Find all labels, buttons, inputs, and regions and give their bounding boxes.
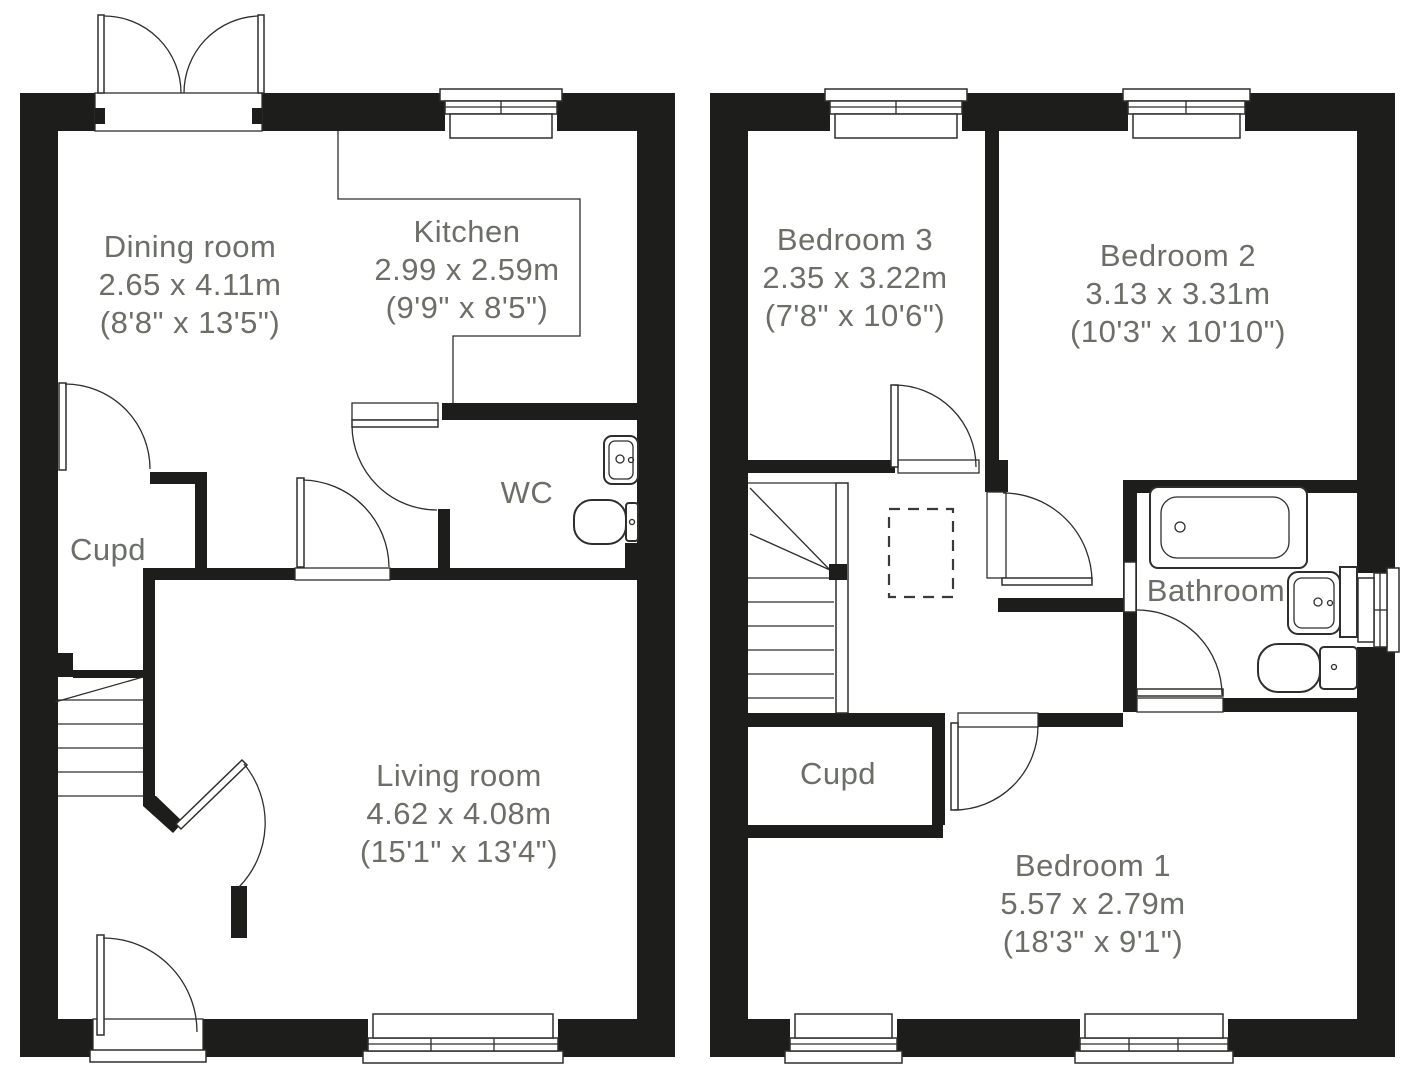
- door-arc: [1003, 493, 1092, 582]
- bedroom3-door: [891, 385, 979, 473]
- living-room-door: [176, 760, 265, 887]
- bathroom-sink: [1288, 567, 1357, 637]
- door-leaf: [59, 383, 66, 470]
- ground-stairs: [55, 670, 143, 796]
- door-arc: [184, 16, 258, 93]
- door-leaf: [352, 420, 438, 427]
- door-leaf: [891, 385, 898, 467]
- door-arc: [239, 764, 265, 887]
- door-leaf: [258, 15, 264, 93]
- room-dims-metric: 2.65 x 4.11m: [99, 267, 282, 302]
- room-dims-metric: 5.57 x 2.79m: [1000, 886, 1185, 921]
- wc-toilet: [574, 500, 638, 544]
- room-dims-metric: 2.99 x 2.59m: [374, 252, 559, 287]
- room-dims-imperial: (8'8" x 13'5"): [100, 305, 280, 340]
- room-label-bedroom1: Bedroom 1: [1015, 848, 1171, 883]
- window: [785, 1014, 902, 1063]
- window: [1075, 1014, 1233, 1063]
- french-doors: [95, 15, 264, 131]
- room-label-bathroom: Bathroom: [1147, 573, 1285, 608]
- room-label-kitchen: Kitchen: [414, 214, 521, 249]
- room-label-cupd-first: Cupd: [800, 756, 876, 791]
- room-dims-imperial: (10'3" x 10'10"): [1070, 314, 1286, 349]
- room-dims-metric: 2.35 x 3.22m: [762, 260, 947, 295]
- window: [1123, 89, 1250, 138]
- first-stairs: [748, 483, 848, 713]
- room-dims-metric: 4.62 x 4.08m: [366, 796, 551, 831]
- front-door: [90, 935, 206, 1062]
- door-arc: [894, 385, 976, 467]
- room-dims-imperial: (7'8" x 10'6"): [765, 298, 945, 333]
- ground-floor-plan: Dining room 2.65 x 4.11m (8'8" x 13'5") …: [20, 15, 675, 1063]
- floor-plan-drawing: Dining room 2.65 x 4.11m (8'8" x 13'5") …: [0, 0, 1401, 1080]
- door-arc: [103, 938, 197, 1032]
- room-dims-imperial: (18'3" x 9'1"): [1003, 924, 1183, 959]
- door-leaf: [1002, 578, 1092, 585]
- door-leaf: [176, 760, 247, 829]
- window: [363, 1014, 563, 1063]
- door-arc: [303, 480, 389, 567]
- cupboard-door: [59, 383, 150, 470]
- door-arc: [65, 384, 150, 469]
- bathroom-toilet: [1258, 644, 1357, 692]
- wc-sink: [604, 436, 638, 484]
- room-label-cupd: Cupd: [70, 532, 146, 567]
- door-arc: [954, 726, 1038, 810]
- room-label-bedroom2: Bedroom 2: [1100, 238, 1256, 273]
- door-leaf: [297, 478, 304, 567]
- room-dims-imperial: (15'1" x 13'4"): [360, 834, 558, 869]
- door-leaf: [98, 15, 104, 93]
- room-label-wc: WC: [501, 475, 554, 510]
- stair-newel: [829, 564, 847, 580]
- first-floor-plan: Bedroom 3 2.35 x 3.22m (7'8" x 10'6") Be…: [710, 89, 1399, 1063]
- stair-railing: [836, 483, 848, 713]
- room-dims-imperial: (9'9" x 8'5"): [386, 290, 549, 325]
- door-leaf: [1137, 689, 1223, 696]
- wc-lobby-door: [352, 403, 438, 510]
- room-label-living: Living room: [376, 758, 542, 793]
- bedroom1-door: [951, 713, 1038, 810]
- bathtub: [1150, 487, 1307, 568]
- window: [440, 89, 562, 138]
- bedroom2-door: [987, 492, 1092, 585]
- door-arc: [104, 16, 181, 93]
- room-label-dining: Dining room: [104, 229, 277, 264]
- door-arc: [352, 426, 437, 510]
- door-arc: [1137, 610, 1222, 695]
- hall-door: [295, 478, 390, 580]
- window: [1358, 568, 1399, 652]
- loft-hatch: [889, 509, 953, 597]
- room-label-bedroom3: Bedroom 3: [777, 222, 933, 257]
- floor-plan-page: Dining room 2.65 x 4.11m (8'8" x 13'5") …: [0, 0, 1401, 1080]
- door-leaf: [97, 935, 104, 1035]
- window: [825, 89, 967, 138]
- room-dims-metric: 3.13 x 3.31m: [1085, 276, 1270, 311]
- door-leaf: [951, 723, 958, 810]
